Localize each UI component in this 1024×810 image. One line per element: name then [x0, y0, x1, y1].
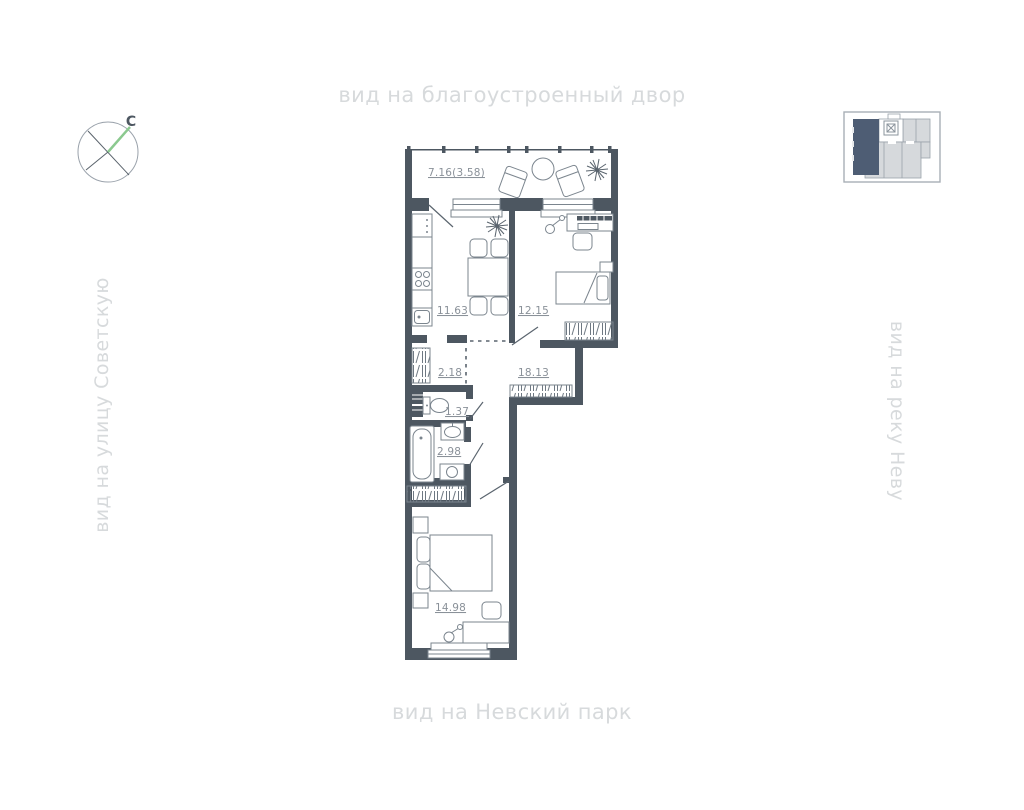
minimap-highlighted-apartment	[853, 119, 879, 175]
balcony-door-swing	[429, 205, 453, 227]
compass: С	[78, 114, 138, 182]
kitchen-counter	[412, 290, 432, 308]
wc-door-swing	[470, 402, 483, 419]
entrance-door-swing	[480, 481, 509, 499]
kitchen-sink	[412, 308, 432, 326]
room-label-bedroom: 12.15	[518, 305, 549, 317]
washing-machine	[440, 464, 464, 480]
desk	[463, 622, 509, 643]
nightstand	[413, 593, 428, 608]
compass-cross-line	[88, 131, 129, 175]
chair	[470, 297, 487, 315]
bedroom-door-swing	[512, 327, 538, 345]
double-bed	[417, 535, 492, 591]
room-label-bathroom: 2.98	[437, 446, 461, 458]
desk-lamp-icon	[546, 216, 565, 234]
desk	[567, 214, 613, 231]
minimap-units-top-right	[903, 119, 930, 142]
single-bed	[556, 272, 610, 304]
building-minimap	[844, 112, 940, 182]
room-label-bedroom-2: 14.98	[435, 602, 466, 614]
minimap-core	[879, 119, 903, 142]
wardrobe	[510, 385, 572, 397]
nightstand	[600, 262, 613, 272]
desk-lamp-icon	[444, 625, 463, 643]
bathtub	[410, 426, 434, 482]
room-label-kitchen: 11.63	[437, 305, 468, 317]
dining-table	[468, 258, 508, 296]
desk-chair	[482, 602, 501, 619]
compass-north-label: С	[126, 114, 136, 130]
caption-courtyard-view: вид на благоустроенный двор	[0, 83, 1024, 107]
desk-chair	[573, 233, 592, 250]
chair	[470, 239, 487, 257]
balcony-table	[532, 158, 554, 180]
vent-shaft	[412, 391, 423, 417]
kitchen-window	[451, 199, 502, 217]
wardrobe	[412, 348, 430, 383]
room-label-closet: 2.18	[438, 367, 462, 379]
room-label-wc: 1.37	[445, 406, 469, 418]
room-label-balcony: 7.16(3.58)	[428, 167, 485, 179]
bathroom-door-swing	[469, 443, 483, 466]
kitchen-counter	[412, 237, 432, 268]
caption-river-view: вид на реку Неву	[886, 321, 908, 501]
chair	[491, 239, 508, 257]
wardrobe	[407, 486, 466, 502]
lounge-chair	[555, 165, 585, 198]
compass-south-line	[86, 152, 108, 170]
lounge-chair	[498, 166, 528, 199]
room-label-hallway: 18.13	[518, 367, 549, 379]
chair	[491, 297, 508, 315]
floor-plan-page: вид на благоустроенный двор вид на Невск…	[0, 0, 1024, 810]
compass-north-needle	[108, 127, 130, 152]
caption-street-view: вид на улицу Советскую	[91, 277, 113, 533]
bedroom-2-window	[428, 643, 490, 658]
wardrobe	[565, 322, 613, 340]
bathroom-sink	[441, 423, 464, 440]
floor-plan-canvas: С	[0, 0, 1024, 810]
stove	[412, 268, 432, 290]
nightstand	[413, 517, 428, 533]
caption-park-view: вид на Невский парк	[0, 700, 1024, 724]
fridge	[412, 214, 432, 237]
